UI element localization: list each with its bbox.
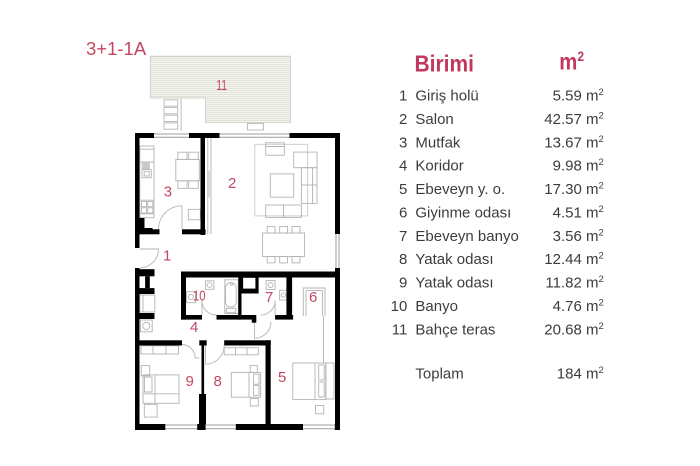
svg-text:2: 2 <box>399 111 407 128</box>
svg-text:10: 10 <box>193 288 206 305</box>
svg-text:5: 5 <box>278 369 286 386</box>
svg-text:3: 3 <box>399 134 407 151</box>
svg-text:3+1-1A: 3+1-1A <box>86 38 147 59</box>
svg-text:Ebeveyn banyo: Ebeveyn banyo <box>415 228 518 245</box>
svg-text:4: 4 <box>190 319 198 336</box>
svg-text:8: 8 <box>399 251 407 268</box>
svg-text:5: 5 <box>399 181 407 198</box>
svg-text:9: 9 <box>399 275 407 292</box>
svg-text:Banyo: Banyo <box>415 298 458 315</box>
svg-text:Bahçe teras: Bahçe teras <box>415 321 495 338</box>
svg-text:Mutfak: Mutfak <box>415 134 461 151</box>
svg-text:11: 11 <box>216 77 227 94</box>
svg-text:184 m2: 184 m2 <box>557 365 604 383</box>
svg-text:17.30 m2: 17.30 m2 <box>544 181 604 199</box>
svg-text:4.76 m2: 4.76 m2 <box>553 298 604 316</box>
svg-text:5.59 m2: 5.59 m2 <box>553 87 604 105</box>
svg-text:13.67 m2: 13.67 m2 <box>544 134 604 152</box>
svg-text:Yatak odası: Yatak odası <box>415 275 493 292</box>
svg-text:Giriş holü: Giriş holü <box>415 88 478 105</box>
svg-text:9.98 m2: 9.98 m2 <box>553 157 604 175</box>
svg-text:3.56 m2: 3.56 m2 <box>553 227 604 245</box>
svg-text:11.82 m2: 11.82 m2 <box>545 274 603 292</box>
svg-text:Salon: Salon <box>415 111 453 128</box>
svg-text:7: 7 <box>265 289 273 306</box>
svg-text:6: 6 <box>399 205 407 222</box>
svg-text:10: 10 <box>391 298 408 315</box>
svg-text:Giyinme odası: Giyinme odası <box>415 205 511 222</box>
svg-text:20.68 m2: 20.68 m2 <box>544 321 604 339</box>
svg-text:42.57 m2: 42.57 m2 <box>544 110 604 128</box>
svg-text:Birimi: Birimi <box>415 50 475 76</box>
svg-text:11: 11 <box>392 321 408 338</box>
svg-text:Toplam: Toplam <box>415 365 463 382</box>
svg-text:1: 1 <box>399 88 407 105</box>
svg-text:4: 4 <box>399 158 407 175</box>
svg-text:3: 3 <box>164 184 172 201</box>
svg-text:4.51 m2: 4.51 m2 <box>553 204 604 222</box>
svg-text:6: 6 <box>309 289 317 306</box>
svg-text:Koridor: Koridor <box>415 158 463 175</box>
svg-text:8: 8 <box>214 373 222 390</box>
svg-text:Ebeveyn y. o.: Ebeveyn y. o. <box>415 181 505 198</box>
svg-text:Yatak odası: Yatak odası <box>415 251 493 268</box>
svg-text:12.44 m2: 12.44 m2 <box>544 251 604 269</box>
svg-text:7: 7 <box>399 228 407 245</box>
svg-text:9: 9 <box>186 373 194 390</box>
svg-text:1: 1 <box>163 248 171 265</box>
svg-text:2: 2 <box>228 175 236 192</box>
